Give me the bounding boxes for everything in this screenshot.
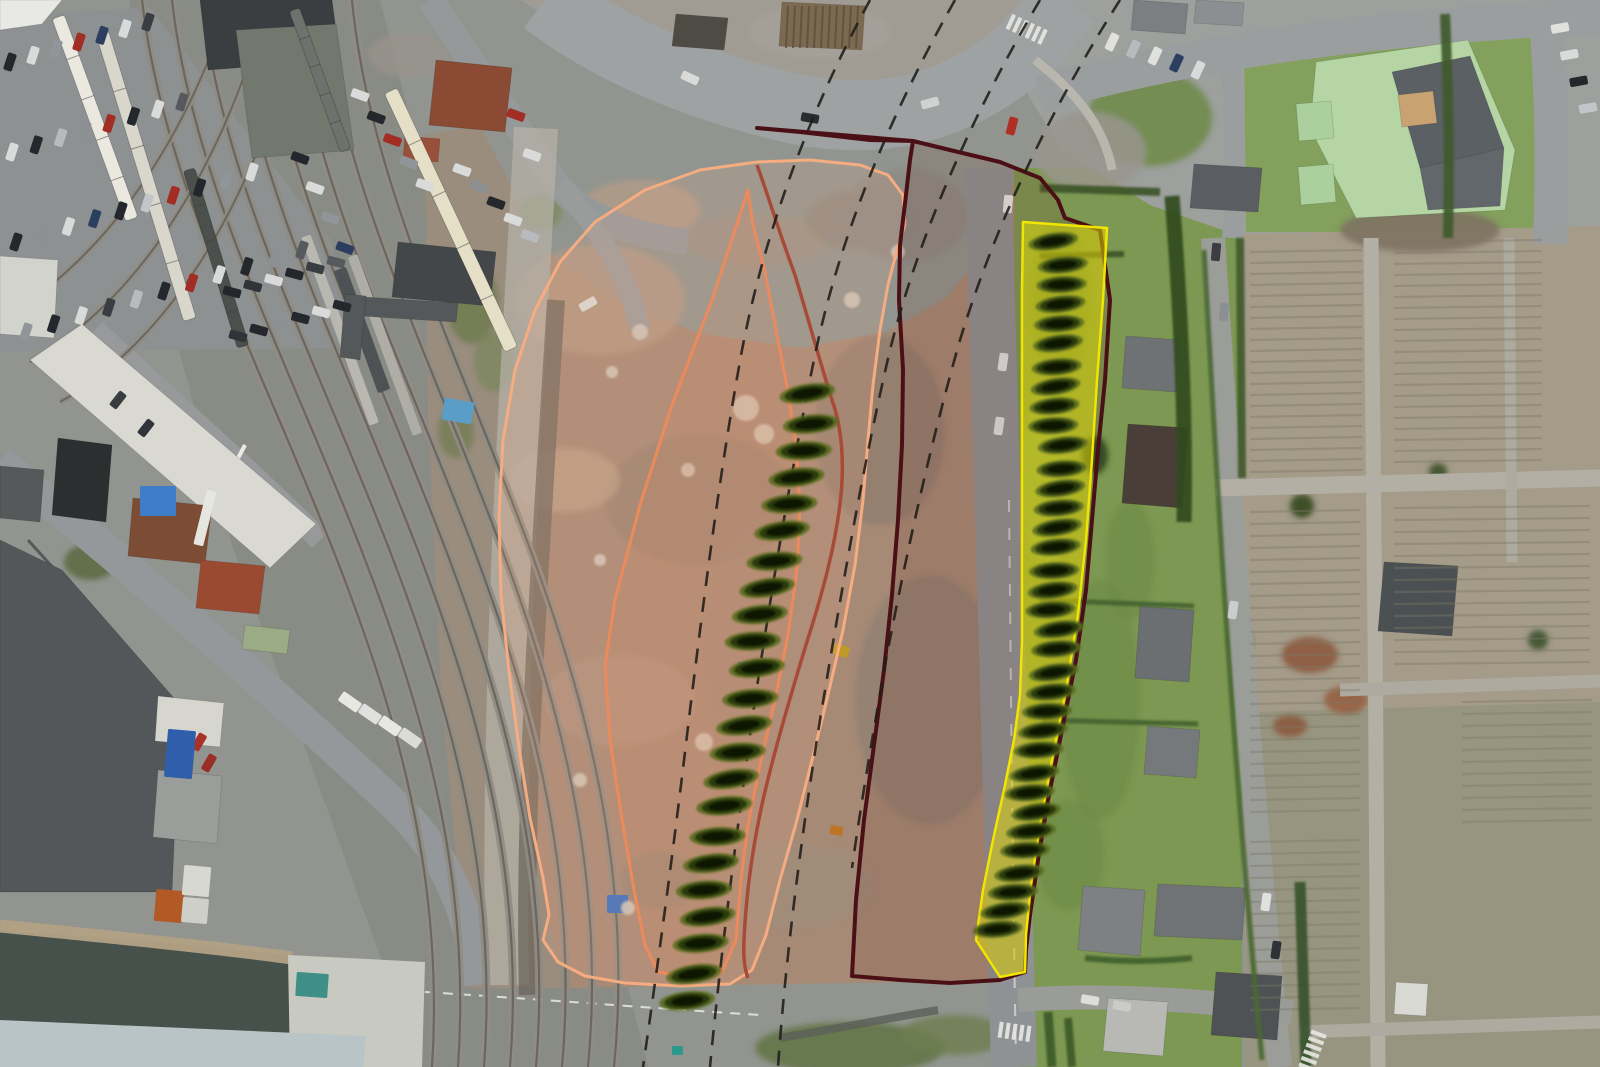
aerial-orthophoto-map <box>0 0 1600 1067</box>
map-canvas <box>0 0 1600 1067</box>
waterfront <box>0 926 425 1067</box>
